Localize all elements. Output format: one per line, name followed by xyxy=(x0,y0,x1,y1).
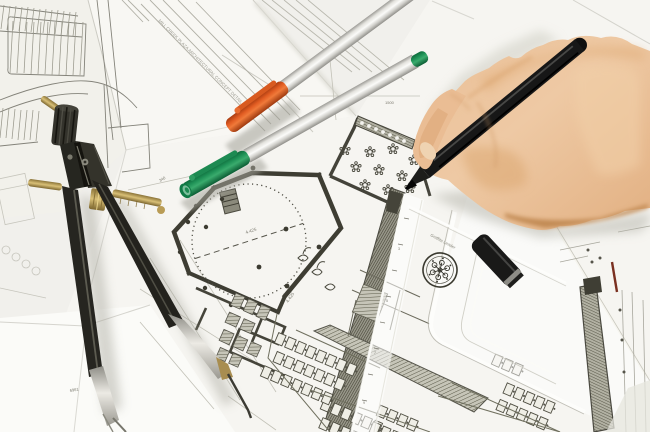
svg-text:7: 7 xyxy=(374,351,376,355)
svg-text:9: 9 xyxy=(363,401,365,405)
svg-text:1500: 1500 xyxy=(385,100,395,105)
svg-text:3: 3 xyxy=(398,247,400,251)
svg-text:5: 5 xyxy=(386,299,388,303)
